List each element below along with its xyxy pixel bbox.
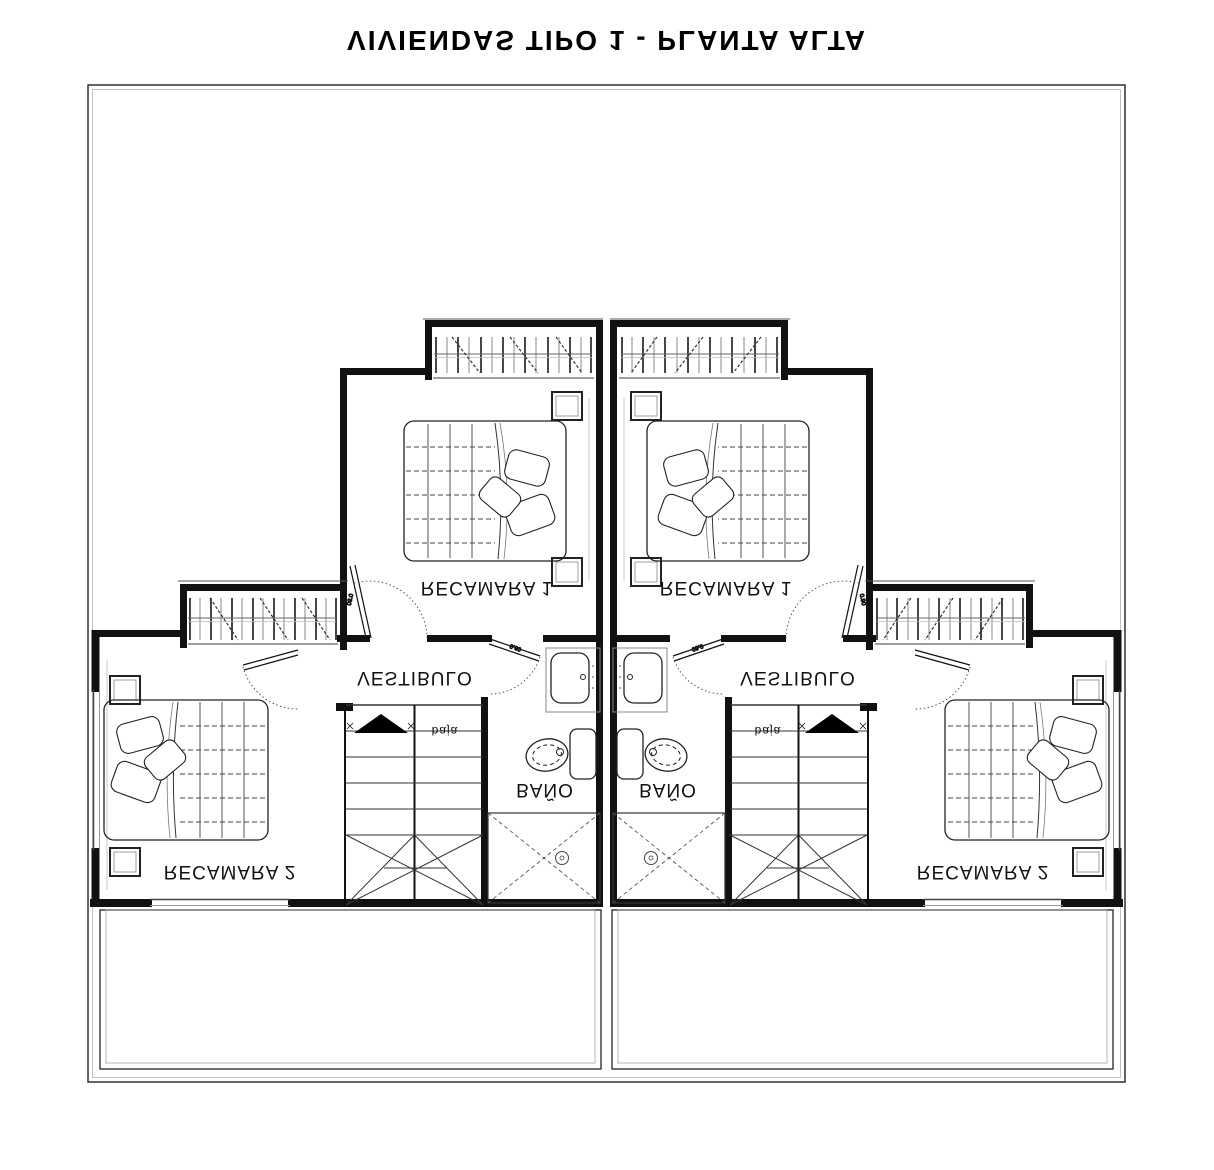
terrace-void	[100, 910, 601, 1069]
site-border	[88, 85, 1125, 1082]
bathroom-fixtures	[488, 648, 600, 903]
label-bedroom1-right: RECAMARA 1	[660, 577, 792, 598]
label-bath-right: BAÑO	[639, 779, 697, 801]
room-labels: RECAMARA 1 VESTIBULO BAÑO RECAMARA 2 baj…	[164, 577, 1049, 882]
closet-bedroom2-hatch	[188, 598, 338, 644]
label-bath-left: BAÑO	[516, 779, 574, 801]
label-stairs-left: baja	[432, 724, 459, 738]
unit-left: 0.90 0.60	[90, 319, 603, 1069]
label-bedroom2-left: RECAMARA 2	[164, 861, 296, 882]
label-bedroom2-right: RECAMARA 2	[917, 861, 1049, 882]
door-dim-label: 0.90	[347, 593, 355, 606]
bed-bedroom1	[404, 392, 589, 586]
shower	[488, 813, 600, 903]
door-bath: 0.60	[489, 639, 540, 694]
door-dim-label: 0.60	[509, 642, 523, 652]
floor-plan-svg: 0.90 0.60 RECA	[0, 0, 1214, 1170]
sink	[546, 648, 600, 712]
unit-right	[610, 319, 1123, 1069]
door-bedroom1: 0.90	[347, 565, 427, 638]
walls	[90, 319, 603, 906]
floor-plan-page: VIVIENDAS TIPO 1 - PLANTA ALTA	[0, 0, 1214, 1170]
bed-bedroom2	[104, 660, 268, 890]
label-hall-right: VESTIBULO	[740, 667, 856, 688]
stairs	[346, 705, 483, 905]
label-stairs-right: baja	[755, 724, 782, 738]
toilet	[524, 729, 596, 779]
stairs-direction-arrow	[347, 714, 414, 733]
plan-title: VIVIENDAS TIPO 1 - PLANTA ALTA	[0, 14, 1214, 66]
label-hall-left: VESTIBULO	[357, 667, 473, 688]
label-bedroom1-left: RECAMARA 1	[421, 577, 553, 598]
closet-bedroom1-hatch	[433, 337, 594, 378]
